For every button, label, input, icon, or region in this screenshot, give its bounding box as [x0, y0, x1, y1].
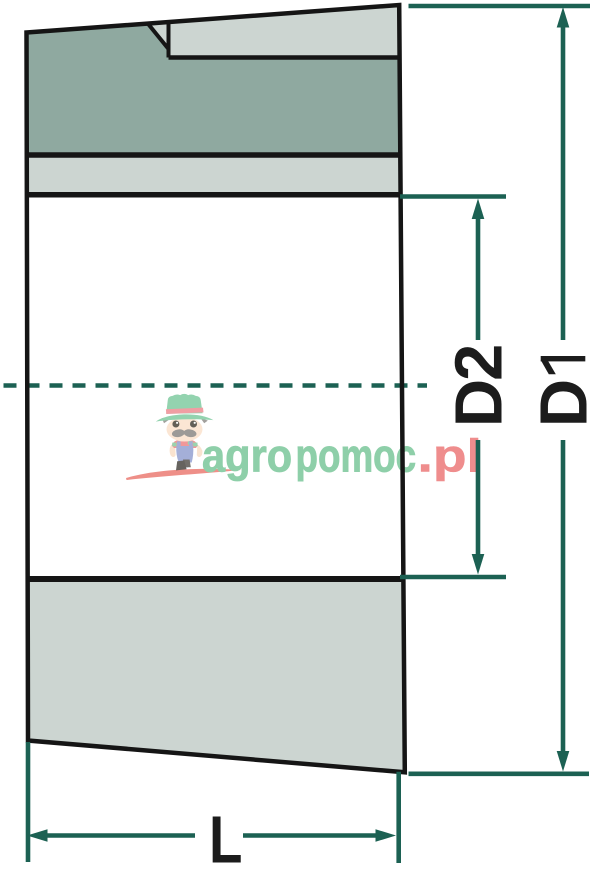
svg-text:pomoc: pomoc — [296, 430, 417, 482]
svg-text:.pl: .pl — [418, 430, 482, 482]
svg-text:D: D — [527, 379, 600, 427]
svg-text:2: 2 — [442, 344, 517, 381]
svg-text:agro: agro — [202, 431, 292, 482]
svg-text:D: D — [442, 379, 517, 427]
svg-text:L: L — [209, 802, 242, 876]
